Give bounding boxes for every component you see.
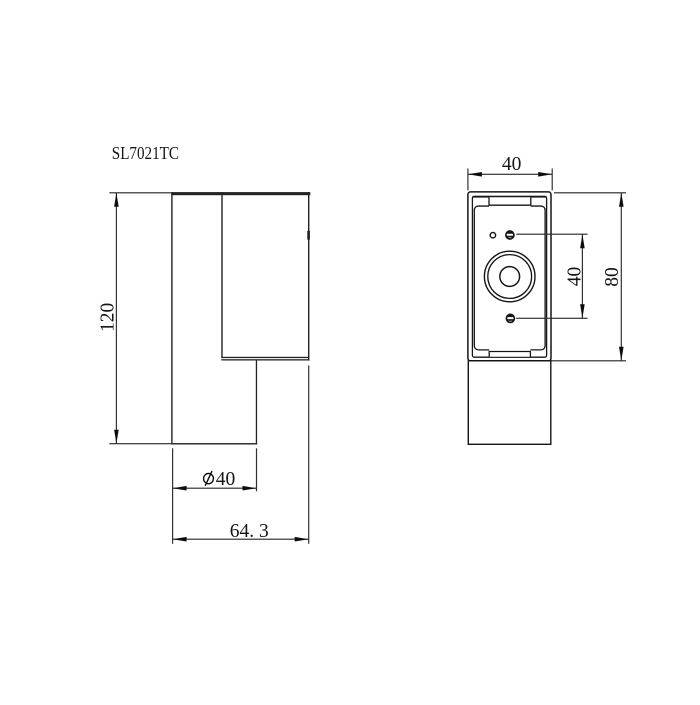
svg-text:40: 40 <box>564 267 585 287</box>
svg-text:40: 40 <box>502 154 522 175</box>
svg-text:120: 120 <box>97 303 118 332</box>
svg-text:40: 40 <box>216 469 236 490</box>
svg-text:SL7021TC: SL7021TC <box>112 143 179 163</box>
svg-text:80: 80 <box>602 267 623 287</box>
svg-text:64. 3: 64. 3 <box>230 521 269 542</box>
